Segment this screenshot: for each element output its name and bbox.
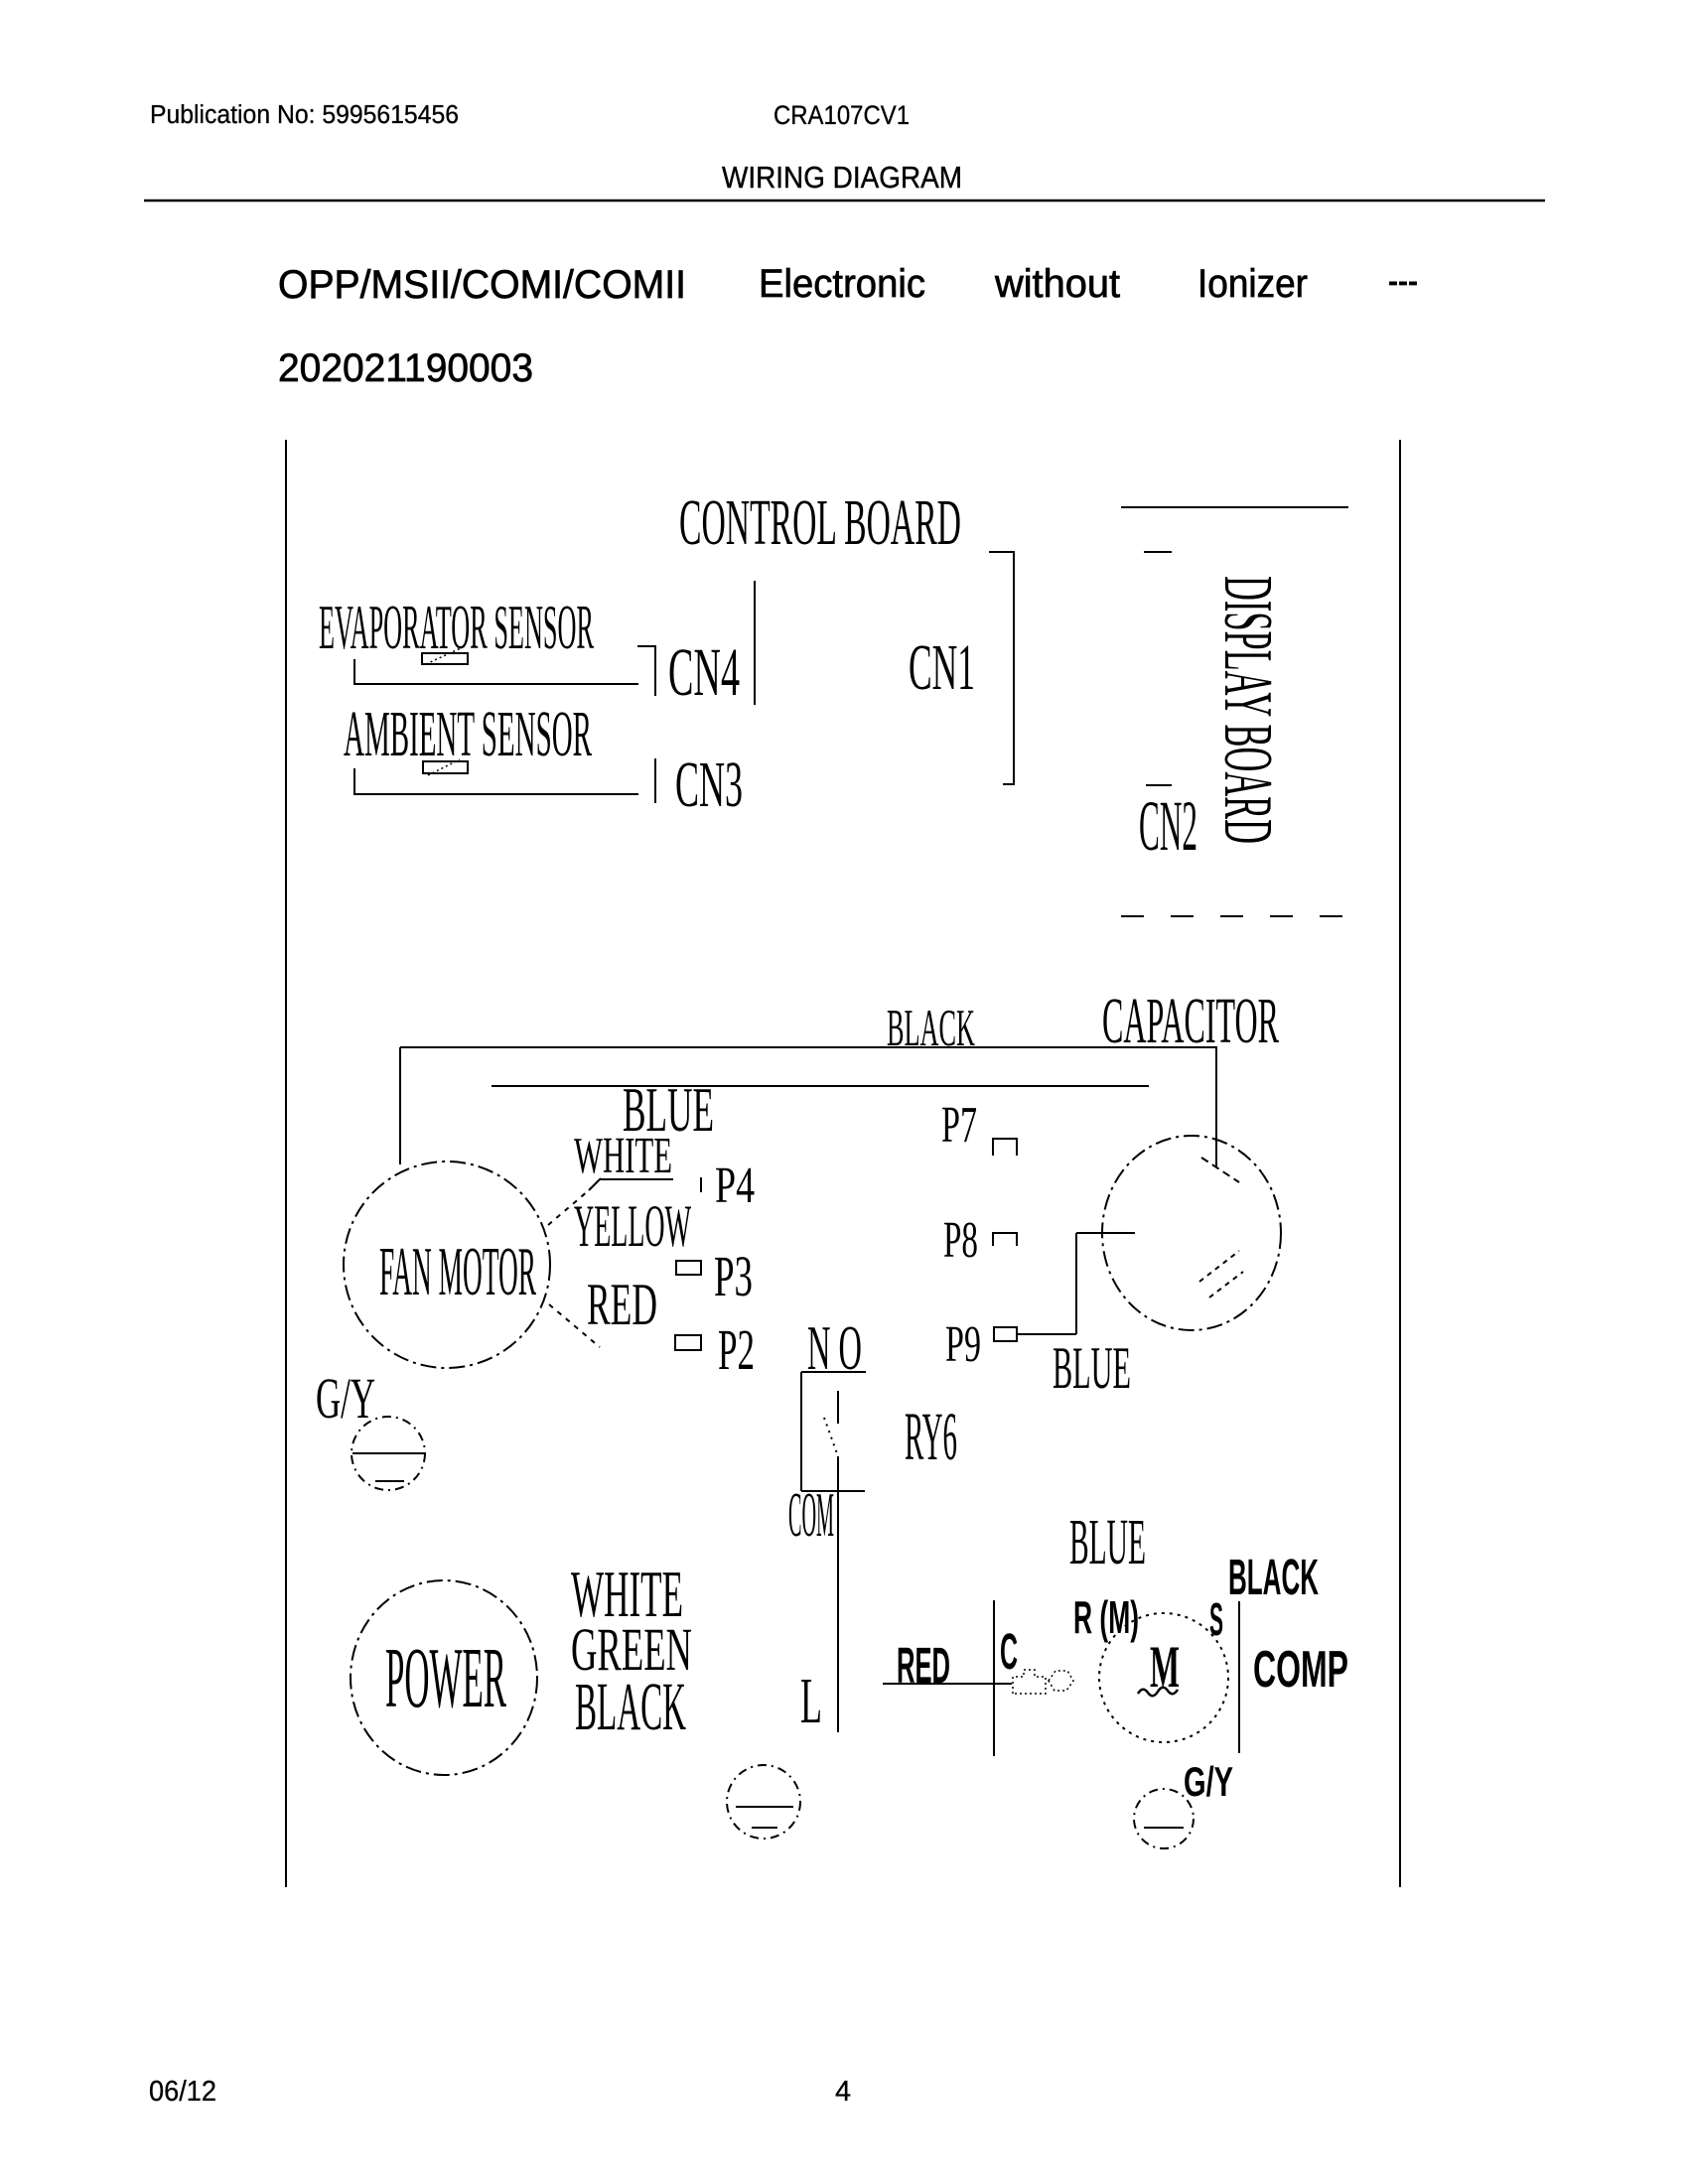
svg-text:CRA107CV1: CRA107CV1 [774, 100, 910, 130]
svg-text:WIRING DIAGRAM: WIRING DIAGRAM [722, 160, 962, 195]
svg-text:N O: N O [807, 1313, 862, 1383]
svg-text:OPP/MSII/COMI/COMII: OPP/MSII/COMI/COMII [278, 263, 686, 307]
svg-text:P4: P4 [715, 1158, 755, 1214]
svg-text:CONTROL BOARD: CONTROL BOARD [679, 486, 961, 559]
svg-text:AMBIENT SENSOR: AMBIENT SENSOR [344, 698, 592, 770]
svg-text:RY6: RY6 [905, 1399, 957, 1474]
svg-text:S: S [1209, 1593, 1223, 1645]
svg-text:CN4: CN4 [668, 634, 740, 710]
svg-text:---: --- [1388, 259, 1418, 303]
svg-text:BLUE: BLUE [1053, 1335, 1131, 1401]
svg-text:BLUE: BLUE [1069, 1506, 1146, 1578]
svg-text:CN2: CN2 [1139, 786, 1197, 866]
svg-text:C: C [1000, 1623, 1018, 1680]
svg-text:CN1: CN1 [909, 631, 975, 704]
svg-text:RED: RED [587, 1272, 657, 1337]
svg-text:P7: P7 [941, 1097, 977, 1154]
svg-text:BLACK: BLACK [575, 1669, 686, 1744]
svg-text:P8: P8 [943, 1212, 978, 1269]
svg-text:without: without [994, 262, 1120, 306]
svg-text:M: M [1150, 1634, 1180, 1700]
svg-text:P3: P3 [714, 1244, 753, 1308]
svg-text:EVAPORATOR SENSOR: EVAPORATOR SENSOR [319, 592, 594, 662]
svg-text:BLACK: BLACK [1228, 1549, 1319, 1605]
svg-text:POWER: POWER [385, 1629, 506, 1725]
svg-text:P2: P2 [718, 1317, 755, 1382]
svg-text:Publication No: 5995615456: Publication No: 5995615456 [150, 101, 459, 129]
svg-text:YELLOW: YELLOW [574, 1193, 691, 1259]
svg-text:CN3: CN3 [675, 749, 743, 821]
svg-text:RED: RED [897, 1637, 950, 1694]
svg-text:COMP: COMP [1253, 1641, 1348, 1699]
svg-text:R (M): R (M) [1073, 1591, 1139, 1643]
svg-text:4: 4 [835, 2076, 851, 2108]
svg-text:WHITE: WHITE [574, 1128, 672, 1184]
svg-text:COM: COM [788, 1479, 834, 1550]
svg-text:G/Y: G/Y [316, 1366, 375, 1431]
svg-text:06/12: 06/12 [149, 2076, 216, 2108]
svg-text:BLACK: BLACK [887, 1000, 975, 1057]
svg-text:DISPLAY BOARD: DISPLAY BOARD [1209, 576, 1286, 844]
svg-text:CAPACITOR: CAPACITOR [1102, 985, 1279, 1057]
svg-text:L: L [800, 1665, 822, 1737]
svg-text:P9: P9 [945, 1316, 981, 1373]
svg-text:202021190003: 202021190003 [278, 346, 533, 390]
svg-text:Electronic: Electronic [759, 262, 925, 306]
svg-text:FAN MOTOR: FAN MOTOR [379, 1234, 536, 1310]
svg-text:G/Y: G/Y [1184, 1758, 1233, 1805]
svg-text:Ionizer: Ionizer [1197, 262, 1308, 306]
